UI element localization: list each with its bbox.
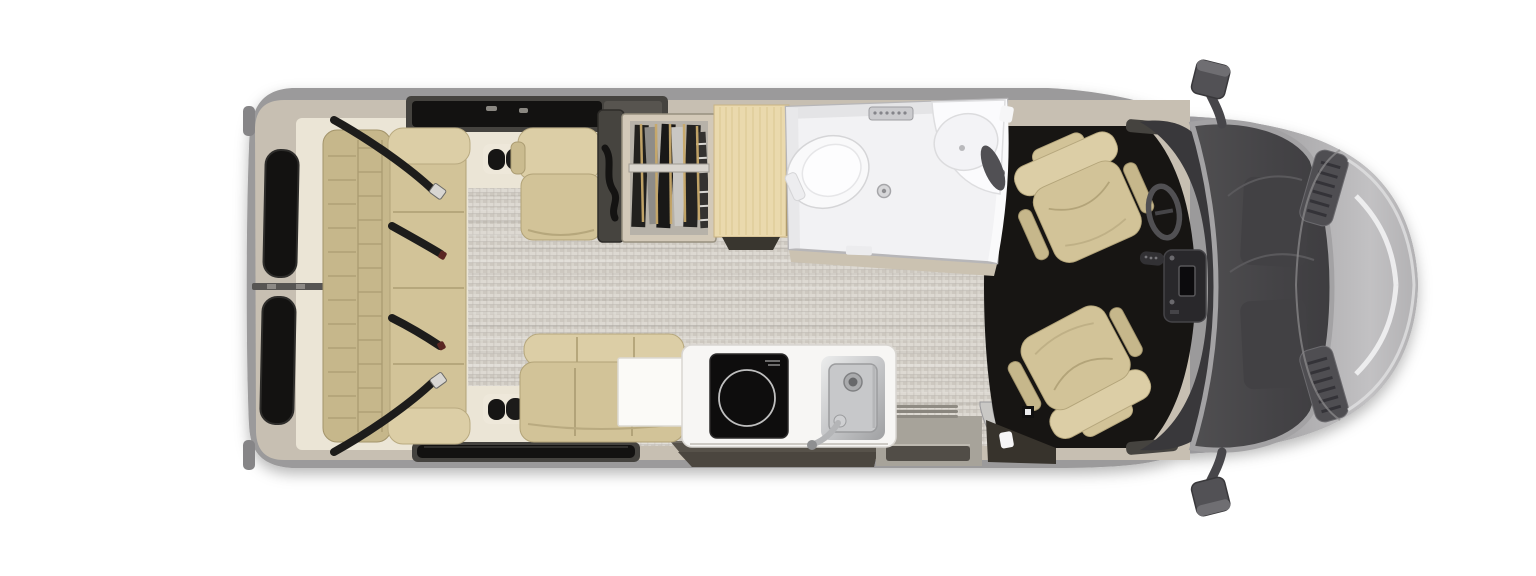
induction-cooktop — [710, 354, 788, 438]
sofa-seat-cushions — [390, 134, 466, 438]
rear-door-divider — [252, 283, 328, 290]
wood-countertop — [714, 105, 789, 250]
table — [618, 358, 684, 426]
van-floorplan — [0, 0, 1536, 576]
faucet-head — [807, 440, 817, 450]
glass-reflection — [1240, 298, 1311, 389]
wet-bath — [775, 99, 1010, 276]
center-console — [1164, 250, 1206, 322]
step-well-shadow — [678, 452, 877, 467]
rear-hinge-top — [243, 106, 255, 136]
floorplan-canvas — [0, 0, 1536, 576]
floor-vent — [894, 405, 958, 418]
window-latch — [486, 106, 497, 111]
left-mirror — [1190, 59, 1231, 124]
bath-sill — [846, 246, 872, 256]
curbside-window — [412, 442, 640, 462]
single-seat-wing — [511, 142, 525, 174]
rear-sofa — [323, 120, 470, 452]
cabinet-base-shadow — [722, 237, 780, 250]
single-seat-cushion — [521, 174, 601, 240]
shower-fixture — [869, 107, 913, 120]
single-seat — [511, 110, 624, 242]
window-latch — [519, 108, 528, 113]
galley — [682, 345, 896, 450]
hanging-clothes — [631, 124, 710, 229]
wardrobe — [622, 114, 716, 242]
shower-drain — [878, 185, 891, 198]
sink-drain — [959, 145, 965, 151]
wardrobe-rail — [629, 164, 709, 172]
right-mirror — [1190, 452, 1231, 517]
entry-step-recess — [886, 446, 970, 461]
single-seat-back — [518, 128, 600, 180]
sofa-back — [323, 130, 391, 442]
rear-hinge-bottom — [243, 440, 255, 470]
